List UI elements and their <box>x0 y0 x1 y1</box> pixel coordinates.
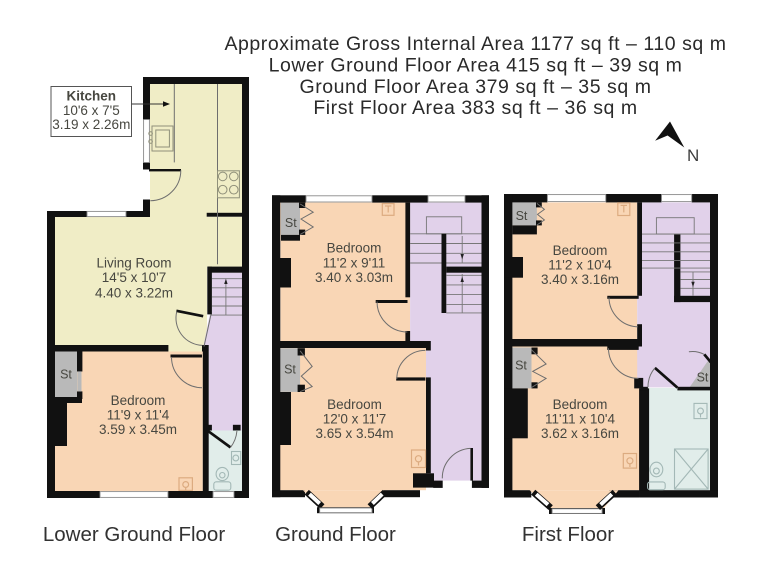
svg-text:3.59 x 3.45m: 3.59 x 3.45m <box>99 422 177 437</box>
svg-text:Kitchen: Kitchen <box>67 89 117 104</box>
svg-text:11'11 x 10'4: 11'11 x 10'4 <box>545 412 615 427</box>
svg-text:Bedroom: Bedroom <box>327 397 382 412</box>
svg-text:Bedroom: Bedroom <box>111 393 166 408</box>
svg-text:St: St <box>515 358 527 372</box>
svg-text:Lower Ground Floor Area 415 sq: Lower Ground Floor Area 415 sq ft – 39 s… <box>269 54 683 76</box>
svg-text:Bedroom: Bedroom <box>553 397 608 412</box>
svg-text:3.62 x 3.16m: 3.62 x 3.16m <box>541 426 619 441</box>
svg-text:3.19 x 2.26m: 3.19 x 2.26m <box>52 117 130 132</box>
svg-text:St: St <box>697 371 709 385</box>
svg-text:Approximate Gross Internal Are: Approximate Gross Internal Area 1177 sq … <box>224 33 726 55</box>
svg-text:Living Room: Living Room <box>96 256 171 271</box>
svg-text:10'6 x 7'5: 10'6 x 7'5 <box>63 103 120 118</box>
svg-text:14'5 x 10'7: 14'5 x 10'7 <box>102 270 166 285</box>
svg-text:Lower Ground Floor: Lower Ground Floor <box>43 523 225 546</box>
svg-text:First Floor Area 383 sq ft – 3: First Floor Area 383 sq ft – 36 sq m <box>313 97 637 119</box>
svg-text:3.65 x 3.54m: 3.65 x 3.54m <box>315 426 393 441</box>
svg-text:N: N <box>687 146 699 165</box>
svg-text:St: St <box>284 363 296 377</box>
svg-text:12'0 x 11'7: 12'0 x 11'7 <box>323 412 386 427</box>
svg-text:3.40 x 3.16m: 3.40 x 3.16m <box>541 272 619 287</box>
svg-text:11'2 x 9'11: 11'2 x 9'11 <box>323 255 385 270</box>
svg-text:Ground Floor Area 379 sq ft –: Ground Floor Area 379 sq ft – 35 sq m <box>299 76 651 98</box>
svg-text:11'9 x 11'4: 11'9 x 11'4 <box>107 408 170 423</box>
svg-text:Ground Floor: Ground Floor <box>275 523 396 546</box>
svg-text:Bedroom: Bedroom <box>327 241 382 256</box>
svg-text:3.40 x 3.03m: 3.40 x 3.03m <box>315 270 393 285</box>
svg-text:St: St <box>285 216 297 230</box>
svg-text:First Floor: First Floor <box>522 523 614 546</box>
svg-text:Bedroom: Bedroom <box>553 243 608 258</box>
svg-text:St: St <box>60 368 72 382</box>
svg-text:4.40 x 3.22m: 4.40 x 3.22m <box>95 286 173 301</box>
svg-text:St: St <box>516 209 528 223</box>
svg-text:11'2 x 10'4: 11'2 x 10'4 <box>548 257 612 272</box>
